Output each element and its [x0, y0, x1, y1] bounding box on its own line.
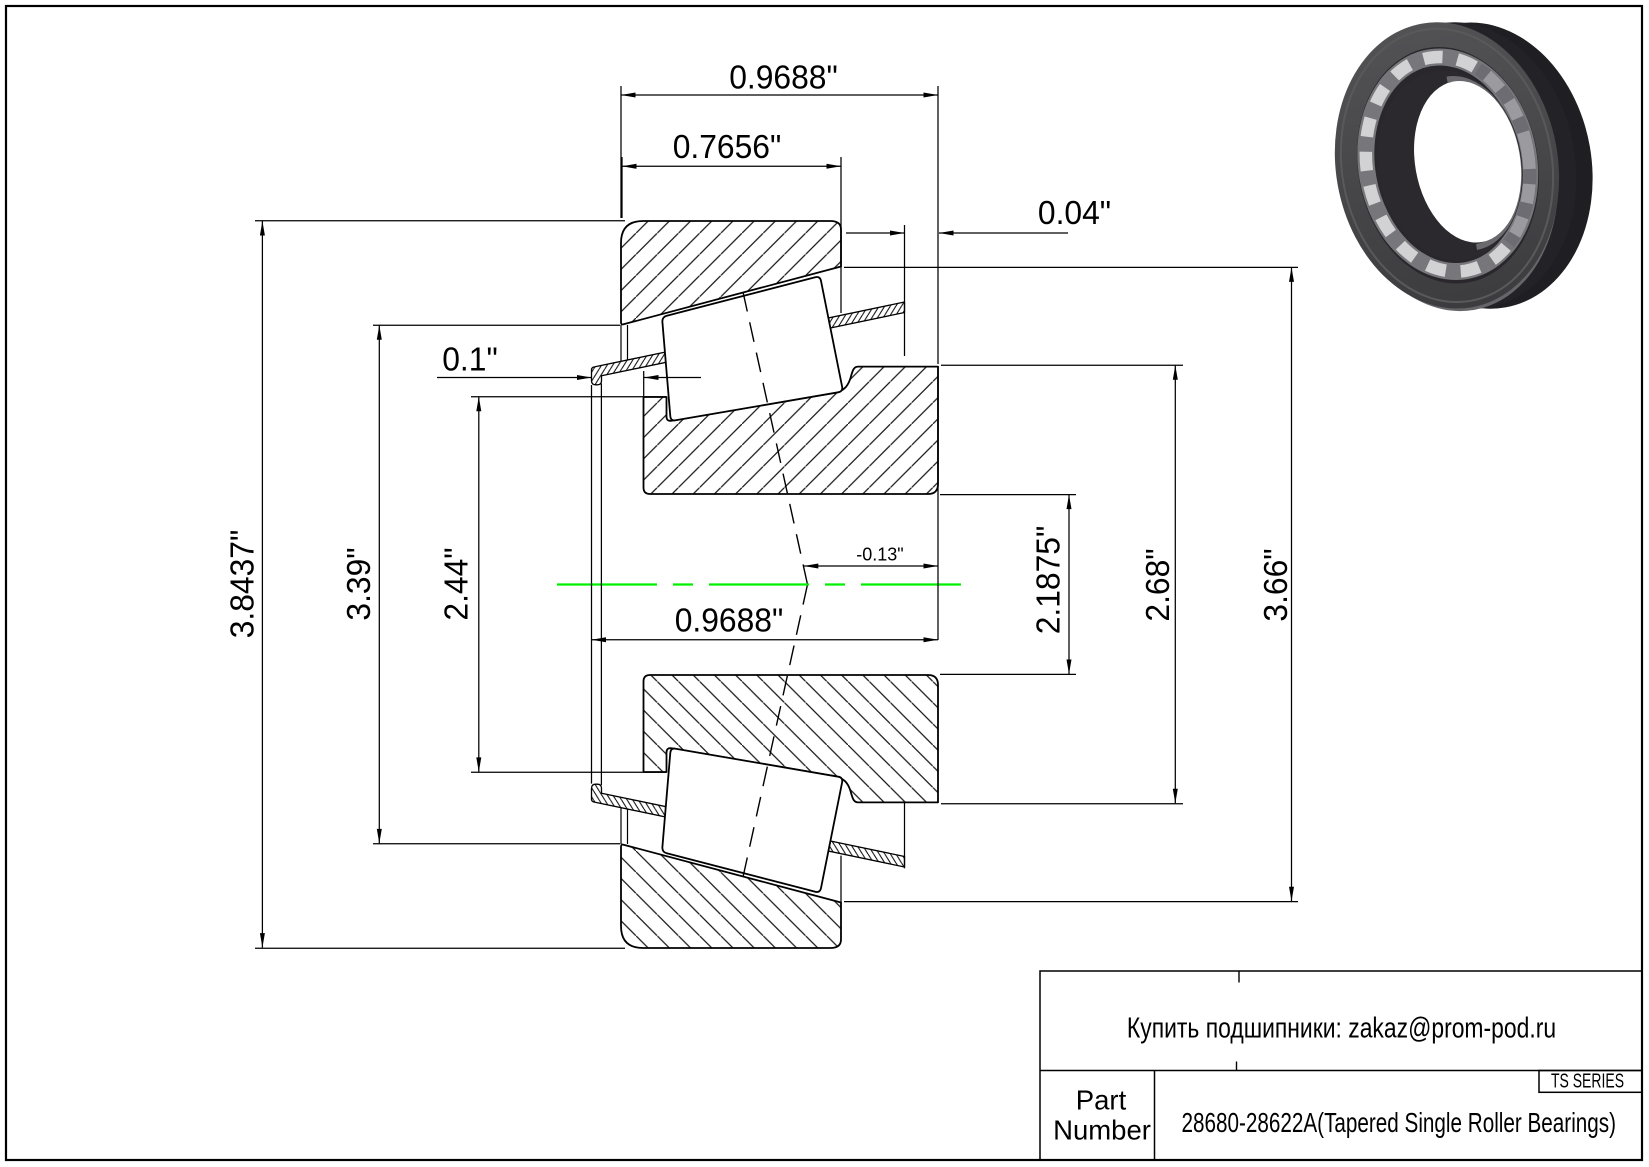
- svg-text:2.68": 2.68": [1138, 548, 1176, 621]
- svg-text:0.7656": 0.7656": [673, 127, 782, 165]
- svg-text:Number: Number: [1053, 1115, 1151, 1146]
- svg-text:0.9688": 0.9688": [729, 58, 838, 96]
- svg-text:2.44": 2.44": [437, 547, 475, 620]
- svg-text:TS SERIES: TS SERIES: [1551, 1069, 1624, 1092]
- svg-text:3.39": 3.39": [339, 547, 377, 620]
- svg-text:2.1875": 2.1875": [1029, 526, 1067, 635]
- svg-text:0.04": 0.04": [1038, 193, 1111, 231]
- svg-text:3.8437": 3.8437": [223, 530, 261, 639]
- svg-text:0.9688": 0.9688": [675, 601, 784, 639]
- svg-text:0.1": 0.1": [442, 340, 498, 378]
- svg-text:28680-28622A(Tapered Single Ro: 28680-28622A(Tapered Single Roller Beari…: [1182, 1108, 1617, 1139]
- svg-text:3.66": 3.66": [1256, 548, 1294, 621]
- svg-text:Купить подшипники: zakaz@prom-: Купить подшипники: zakaz@prom-pod.ru: [1127, 1011, 1556, 1044]
- svg-text:Part: Part: [1076, 1085, 1127, 1116]
- svg-text:-0.13": -0.13": [856, 545, 903, 565]
